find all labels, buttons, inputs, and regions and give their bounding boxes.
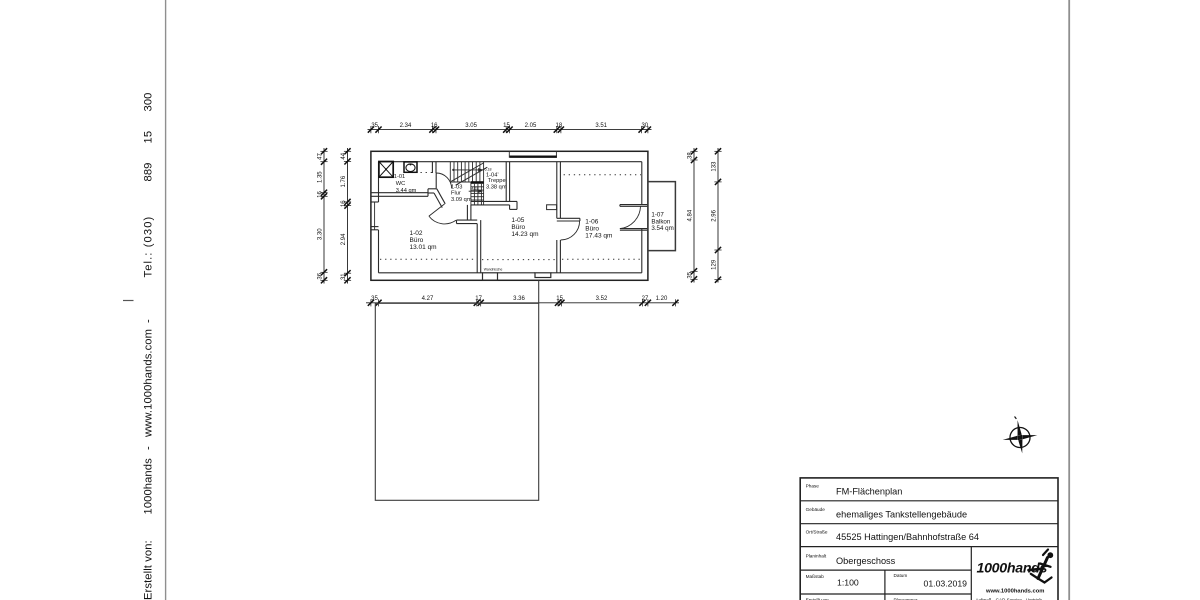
svg-text:3.44 qm: 3.44 qm: [396, 188, 417, 194]
svg-text:1.35: 1.35: [318, 171, 324, 183]
svg-text:Obergeschoss: Obergeschoss: [836, 556, 896, 566]
svg-text:2.34: 2.34: [400, 123, 412, 129]
svg-text:4.84: 4.84: [688, 209, 694, 221]
svg-text:Phase: Phase: [806, 484, 820, 489]
svg-text:129: 129: [712, 259, 718, 270]
svg-text:1.20: 1.20: [656, 296, 668, 302]
svg-text:1-03: 1-03: [451, 184, 462, 190]
svg-text:www.1000hands.com: www.1000hands.com: [985, 588, 1044, 594]
svg-text:Wandnische: Wandnische: [484, 268, 503, 272]
svg-text:3.38 qm: 3.38 qm: [486, 184, 507, 190]
svg-text:-: -: [143, 446, 155, 450]
svg-text:3.54 qm: 3.54 qm: [651, 225, 673, 232]
svg-text:Tel.: (030): Tel.: (030): [143, 216, 155, 278]
svg-text:133: 133: [712, 161, 718, 172]
svg-text:1-01: 1-01: [394, 174, 405, 180]
svg-text:Maßstab: Maßstab: [806, 574, 825, 579]
svg-text:300: 300: [143, 93, 155, 112]
svg-text:Büro: Büro: [410, 237, 424, 244]
svg-text:Datum: Datum: [894, 573, 908, 578]
svg-text:Büro: Büro: [511, 224, 525, 231]
svg-text:6,18: 6,18: [485, 168, 492, 172]
svg-text:FM-Flächenplan: FM-Flächenplan: [836, 486, 902, 496]
svg-text:1000hands: 1000hands: [143, 458, 155, 515]
svg-text:01.03.2019: 01.03.2019: [924, 578, 968, 588]
svg-text:3.05: 3.05: [465, 123, 477, 129]
svg-text:1-06: 1-06: [585, 219, 598, 226]
svg-text:1.76: 1.76: [341, 175, 347, 187]
svg-text:Erstellt von:: Erstellt von:: [143, 540, 155, 600]
svg-text:17.43 qm: 17.43 qm: [585, 233, 612, 240]
svg-text:1-05: 1-05: [511, 217, 524, 224]
svg-text:13.01 qm: 13.01 qm: [410, 244, 437, 251]
svg-text:WC: WC: [396, 181, 405, 187]
svg-text:ehemaliges Tankstellengebäude: ehemaliges Tankstellengebäude: [836, 510, 967, 520]
svg-text:Flur: Flur: [451, 191, 461, 197]
svg-text:4.27: 4.27: [422, 296, 434, 302]
svg-text:15: 15: [143, 131, 155, 144]
svg-text:3.30: 3.30: [318, 228, 324, 240]
svg-text:Planinhalt: Planinhalt: [806, 553, 827, 558]
svg-text:3.09 qm: 3.09 qm: [451, 197, 472, 203]
svg-text:14.23 qm: 14.23 qm: [511, 231, 538, 238]
svg-text:Treppe: Treppe: [488, 178, 506, 184]
svg-text:1-02: 1-02: [410, 230, 423, 237]
svg-text:2.05: 2.05: [525, 123, 537, 129]
svg-text:3.51: 3.51: [595, 123, 607, 129]
svg-text:Gebäude: Gebäude: [806, 507, 826, 512]
svg-text:4,18: 4,18: [472, 187, 479, 191]
svg-text:-: -: [143, 319, 155, 323]
svg-text:3.52: 3.52: [596, 296, 608, 302]
svg-text:2.96: 2.96: [712, 209, 718, 221]
svg-text:1:100: 1:100: [837, 577, 859, 587]
svg-text:889: 889: [143, 163, 155, 182]
svg-text:Ort/Straße: Ort/Straße: [806, 530, 828, 535]
svg-text:Büro: Büro: [585, 226, 599, 233]
svg-text:3.36: 3.36: [513, 296, 525, 302]
svg-text:45525 Hattingen/Bahnhofstraße: 45525 Hattingen/Bahnhofstraße 64: [836, 532, 979, 542]
svg-text:www.1000hands.com: www.1000hands.com: [143, 329, 155, 438]
svg-text:2.94: 2.94: [341, 233, 347, 245]
